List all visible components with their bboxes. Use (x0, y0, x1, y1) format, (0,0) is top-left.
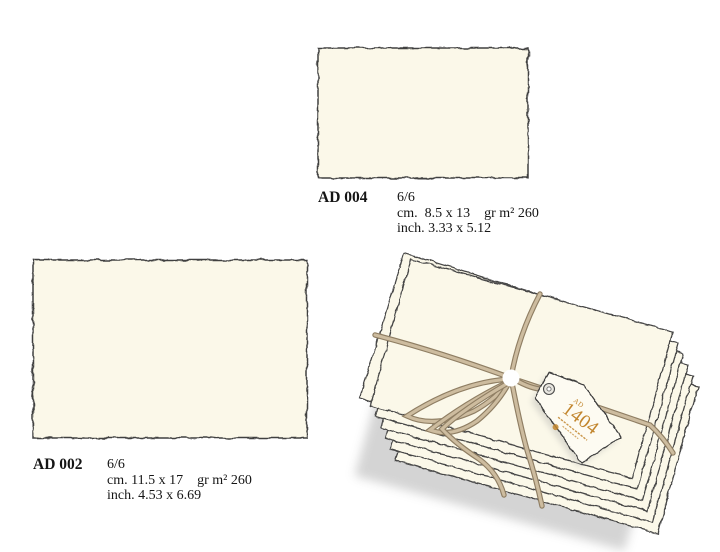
paper-bundle: AD 1404 (355, 253, 699, 551)
product-label-ad004: AD 004 6/6 cm. 8.5 x 13gr m² 260 inch. 3… (318, 190, 539, 237)
product-size-cm: cm. 8.5 x 13 (397, 206, 470, 221)
product-weight: gr m² 260 (484, 206, 539, 221)
product-count: 6/6 (107, 457, 252, 473)
product-code: AD 004 (318, 190, 397, 237)
product-code: AD 002 (33, 457, 107, 504)
product-count: 6/6 (397, 190, 539, 206)
product-size-inch: inch. 3.33 x 5.12 (397, 221, 539, 237)
catalog-page: AD 1404 AD 004 6/6 cm. 8.5 x 13gr m² 260… (0, 0, 720, 552)
card-image-ad004 (318, 48, 528, 178)
card-image-ad002 (33, 260, 307, 438)
knot-seal (503, 370, 520, 387)
product-weight: gr m² 260 (197, 473, 252, 488)
product-size-cm: cm. 11.5 x 17 (107, 473, 183, 488)
product-size-inch: inch. 4.53 x 6.69 (107, 488, 252, 504)
product-label-ad002: AD 002 6/6 cm. 11.5 x 17gr m² 260 inch. … (33, 457, 252, 504)
